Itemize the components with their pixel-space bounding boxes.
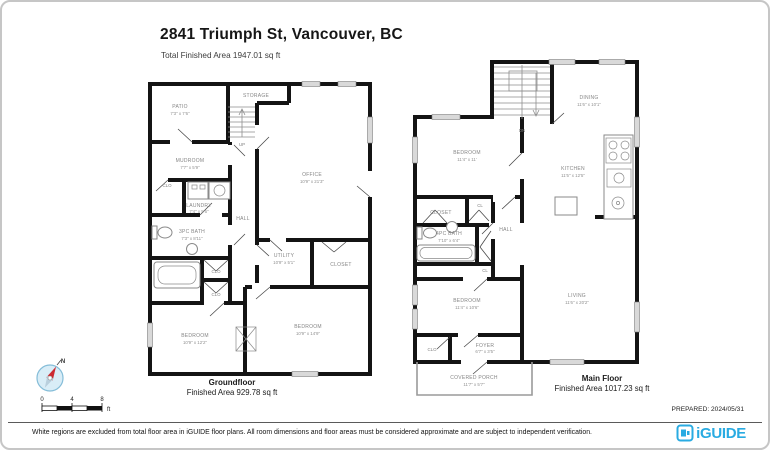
stairs-up-label: UP bbox=[239, 142, 245, 147]
room-label-clo-lower: CLO bbox=[211, 292, 221, 297]
scale-tick-0: 0 bbox=[40, 397, 44, 403]
mainfloor-name: Main Floor bbox=[517, 374, 687, 383]
room-label-office: OFFICE bbox=[302, 172, 322, 178]
sink-icon bbox=[187, 244, 198, 255]
mainfloor-stairs bbox=[494, 65, 550, 119]
room-label-mudroom: MUDROOM bbox=[176, 158, 205, 164]
mainfloor-plan: DN DINING 11'6" x 10'1" BEDROOM 11'4" x … bbox=[405, 57, 645, 402]
iguide-logo-text: iGUIDE bbox=[696, 425, 746, 442]
room-label-hall: HALL bbox=[236, 216, 250, 222]
scale-tick-8: 8 bbox=[100, 397, 104, 403]
total-area-subtitle: Total Finished Area 1947.01 sq ft bbox=[161, 51, 280, 60]
room-label-storage: STORAGE bbox=[243, 93, 270, 99]
room-label-porch: COVERED PORCH bbox=[450, 375, 498, 381]
room-dims-bedroom-lower: 11'4" x 10'6" bbox=[455, 305, 479, 310]
room-label-hall: HALL bbox=[499, 227, 513, 233]
room-label-utility: UTILITY bbox=[274, 253, 295, 259]
fridge-icon bbox=[555, 197, 577, 215]
stairs-dn-label: DN bbox=[519, 128, 525, 133]
mainfloor-area: Finished Area 1017.23 sq ft bbox=[517, 384, 687, 393]
room-label-clo-mid: CLO bbox=[211, 269, 221, 274]
room-dims-bedroom-right: 10'9" x 14'9" bbox=[296, 331, 321, 336]
room-label-closet: CLOSET bbox=[330, 262, 352, 268]
compass-north-label: N bbox=[61, 359, 65, 365]
scale-unit-label: ft bbox=[107, 407, 111, 413]
room-label-dining: DINING bbox=[580, 95, 599, 101]
kitchen-counter-icon bbox=[604, 135, 633, 219]
room-label-cl-upper: CL bbox=[477, 203, 483, 208]
room-label-cl-lower: CL bbox=[482, 268, 488, 273]
page-title: 2841 Triumph St, Vancouver, BC bbox=[160, 26, 403, 44]
room-label-bedroom-right: BEDROOM bbox=[294, 324, 322, 330]
mainfloor-caption: Main Floor Finished Area 1017.23 sq ft bbox=[517, 374, 687, 393]
compass-icon: N bbox=[30, 352, 76, 398]
toilet-tank-icon bbox=[152, 226, 157, 239]
iguide-logo-icon bbox=[676, 424, 694, 442]
disclaimer-text: White regions are excluded from total fl… bbox=[32, 429, 657, 436]
room-label-bedroom-left: BEDROOM bbox=[181, 333, 209, 339]
room-dims-foyer: 6'7" x 3'5" bbox=[475, 349, 495, 354]
room-dims-bedroom-upper: 11'4" x 11' bbox=[457, 157, 477, 162]
room-dims-mudroom: 7'7" x 5'9" bbox=[180, 165, 200, 170]
room-label-bath: 4PC BATH bbox=[436, 231, 462, 237]
room-dims-dining: 11'6" x 10'1" bbox=[577, 102, 601, 107]
room-label-closet: CLOSET bbox=[430, 210, 452, 216]
room-label-patio: PATIO bbox=[172, 104, 188, 110]
room-label-clo: CLO bbox=[427, 347, 437, 352]
scale-tick-4: 4 bbox=[70, 397, 74, 403]
room-dims-bedroom-left: 10'9" x 12'2" bbox=[183, 340, 208, 345]
groundfloor-plan: PATIO 7'3" x 7'6" STORAGE UP MUDROOM 7'7… bbox=[142, 75, 382, 377]
groundfloor-stairs bbox=[228, 107, 255, 137]
room-dims-bath: 7'3" x 8'11" bbox=[181, 236, 203, 241]
room-dims-utility: 10'9" x 5'1" bbox=[273, 260, 295, 265]
iguide-logo: iGUIDE bbox=[676, 424, 746, 442]
room-dims-laundry: 7'4" x 5'5" bbox=[189, 209, 209, 214]
room-label-living: LIVING bbox=[568, 293, 586, 299]
room-label-kitchen: KITCHEN bbox=[561, 166, 585, 172]
toilet-icon bbox=[158, 227, 172, 238]
room-label-clo-upper: CLO bbox=[162, 183, 172, 188]
room-dims-porch: 11'7" x 5'7" bbox=[463, 382, 485, 387]
scale-bar: 0 4 8 ft bbox=[38, 394, 122, 420]
groundfloor-name: Groundfloor bbox=[147, 378, 317, 387]
room-label-bath: 3PC BATH bbox=[179, 229, 205, 235]
room-label-bedroom-upper: BEDROOM bbox=[453, 150, 481, 156]
floorplan-page: 2841 Triumph St, Vancouver, BC Total Fin… bbox=[0, 0, 770, 450]
room-label-bedroom-lower: BEDROOM bbox=[453, 298, 481, 304]
room-dims-bath: 7'10" x 6'4" bbox=[438, 238, 460, 243]
toilet-tank-icon bbox=[417, 227, 422, 239]
footer-divider bbox=[8, 422, 762, 423]
groundfloor-area: Finished Area 929.78 sq ft bbox=[147, 388, 317, 397]
room-dims-kitchen: 11'5" x 12'5" bbox=[561, 173, 585, 178]
mainfloor-room-labels: DN DINING 11'6" x 10'1" BEDROOM 11'4" x … bbox=[427, 95, 601, 387]
room-dims-office: 10'9" x 21'3" bbox=[300, 179, 325, 184]
room-dims-patio: 7'3" x 7'6" bbox=[170, 111, 190, 116]
prepared-date: PREPARED: 2024/05/31 bbox=[672, 406, 744, 413]
groundfloor-caption: Groundfloor Finished Area 929.78 sq ft bbox=[147, 378, 317, 397]
room-dims-living: 11'6" x 20'2" bbox=[565, 300, 589, 305]
toilet-icon bbox=[424, 228, 437, 238]
